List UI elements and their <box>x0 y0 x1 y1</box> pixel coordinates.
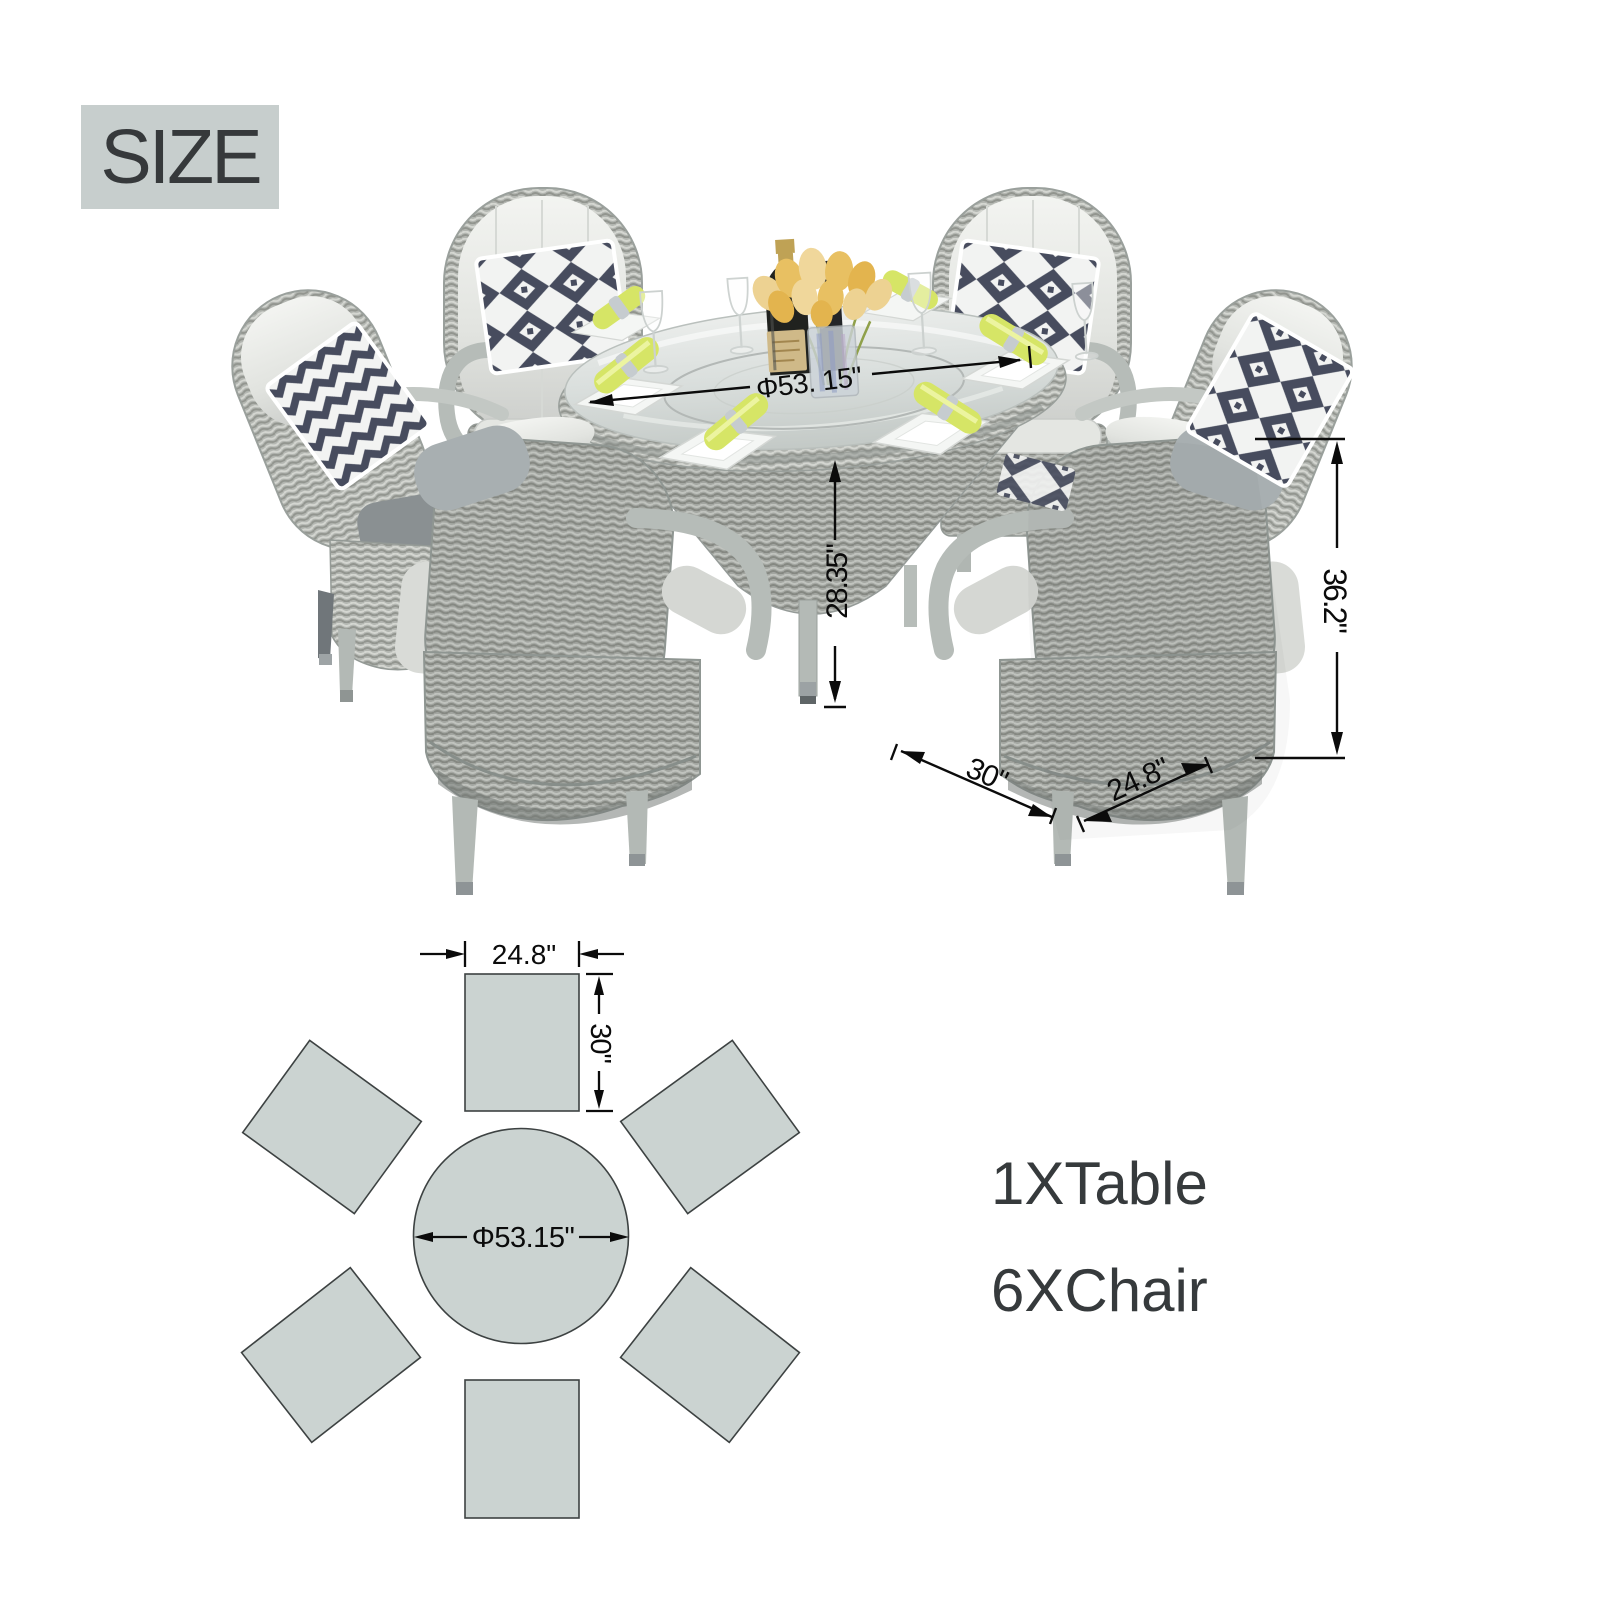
svg-text:30": 30" <box>584 1023 616 1063</box>
svg-text:36.2": 36.2" <box>1317 568 1353 632</box>
svg-text:24.8": 24.8" <box>492 939 556 970</box>
svg-text:Φ53.15": Φ53.15" <box>472 1222 575 1254</box>
svg-text:28.35": 28.35" <box>821 544 854 619</box>
